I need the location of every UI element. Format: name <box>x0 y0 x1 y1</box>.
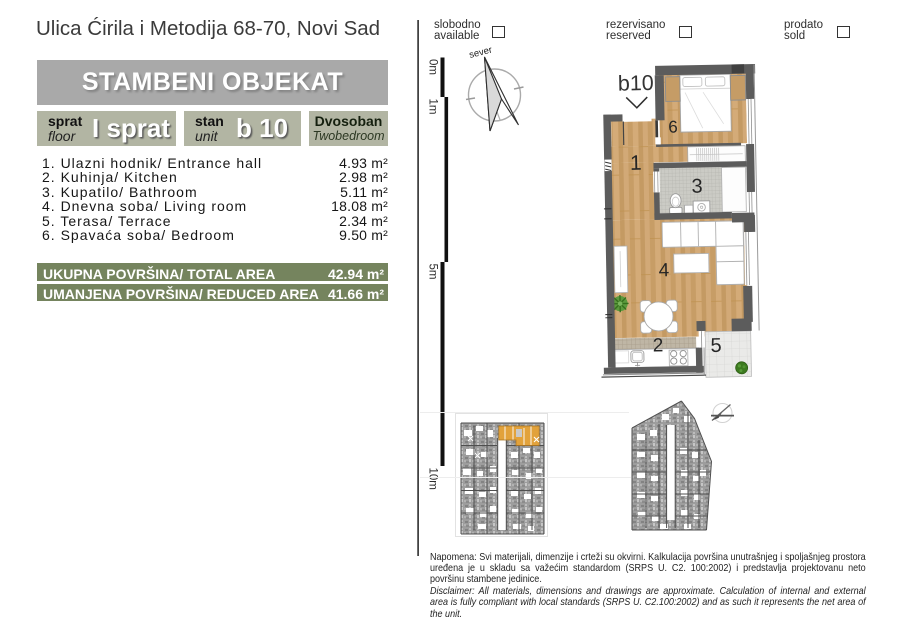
svg-text:1: 1 <box>630 152 642 175</box>
svg-text:sever: sever <box>468 45 493 61</box>
svg-text:1m: 1m <box>427 99 439 115</box>
svg-text:3: 3 <box>691 176 703 198</box>
svg-text:2: 2 <box>653 335 664 356</box>
svg-text:0m: 0m <box>427 59 439 75</box>
svg-text:5m: 5m <box>427 264 439 280</box>
svg-text:b10: b10 <box>618 71 654 96</box>
svg-text:10m: 10m <box>427 468 439 490</box>
svg-text:4: 4 <box>658 260 669 281</box>
svg-text:6: 6 <box>668 117 678 136</box>
svg-text:5: 5 <box>710 335 722 357</box>
